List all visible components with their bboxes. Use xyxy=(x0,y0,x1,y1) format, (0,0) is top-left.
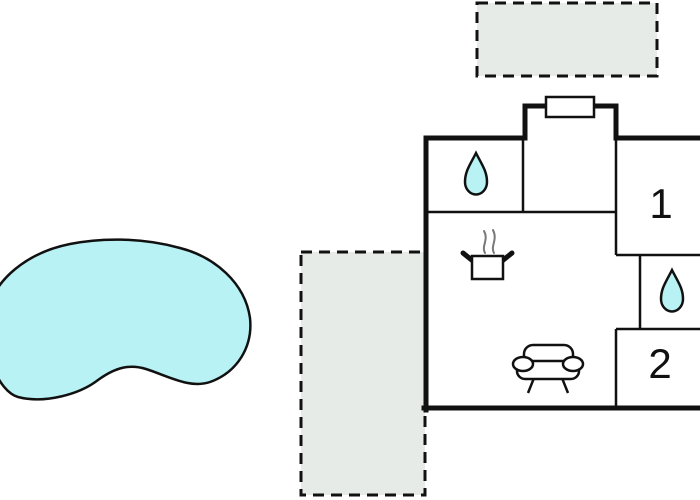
terrace-top xyxy=(477,3,657,76)
room-1-label: 1 xyxy=(649,180,672,227)
room-2-label: 2 xyxy=(648,340,671,387)
pot-body xyxy=(472,256,503,279)
floor-plan-canvas: 1 2 xyxy=(0,0,700,500)
entrance-window xyxy=(546,97,594,117)
sofa-armrest-right xyxy=(563,357,583,371)
sofa-armrest-left xyxy=(513,357,533,371)
pond xyxy=(0,240,250,400)
floor-plan-drawing: 1 2 xyxy=(0,0,700,500)
terrace-side xyxy=(301,252,425,495)
